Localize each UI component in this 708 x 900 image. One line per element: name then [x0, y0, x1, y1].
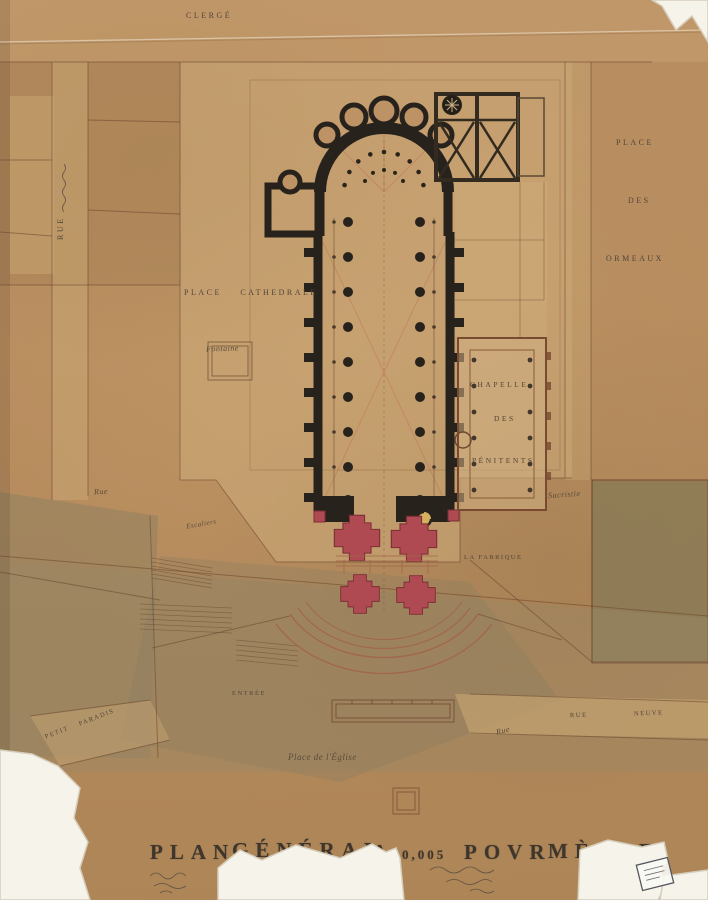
plan-sheet: CLERGÉ RUE PLACE DES ORMEAUX PLACE CATHE… [0, 0, 708, 900]
label-chapelle-des: DES [494, 414, 516, 423]
label-fontaine: Fontaine [206, 343, 239, 353]
title-general: GÉNÉRAL [232, 838, 385, 863]
label-des: DES [628, 196, 651, 205]
label-chapelle: CHAPELLE [470, 380, 528, 389]
label-rue-bottom: RUE [570, 712, 588, 720]
title-pour: POVR [464, 840, 552, 865]
title-plan: PLAN [150, 840, 235, 865]
label-neuve: NEUVE [634, 709, 664, 717]
label-penitents: PÉNITENTS [472, 456, 535, 465]
label-rue-cursive-left: Rue [94, 487, 108, 497]
site-plan-drawing [0, 0, 708, 900]
label-clerge: CLERGÉ [186, 11, 232, 20]
label-la-fabrique: LA FABRIQUE [464, 554, 522, 561]
title-scale-value: 0,005 [402, 847, 446, 863]
label-place-cathedrale: PLACE CATHEDRALE [184, 288, 318, 297]
label-ormeaux: ORMEAUX [606, 254, 664, 263]
title-metre: MÈTRE [548, 839, 660, 864]
label-rue-vertical: RUE [56, 217, 65, 241]
small-square-structure [393, 788, 419, 814]
label-place-eglise: Place de l'Église [288, 752, 357, 762]
title-a: A [372, 840, 394, 865]
label-entree: ENTRÉE [232, 690, 266, 697]
label-place: PLACE [616, 138, 654, 147]
